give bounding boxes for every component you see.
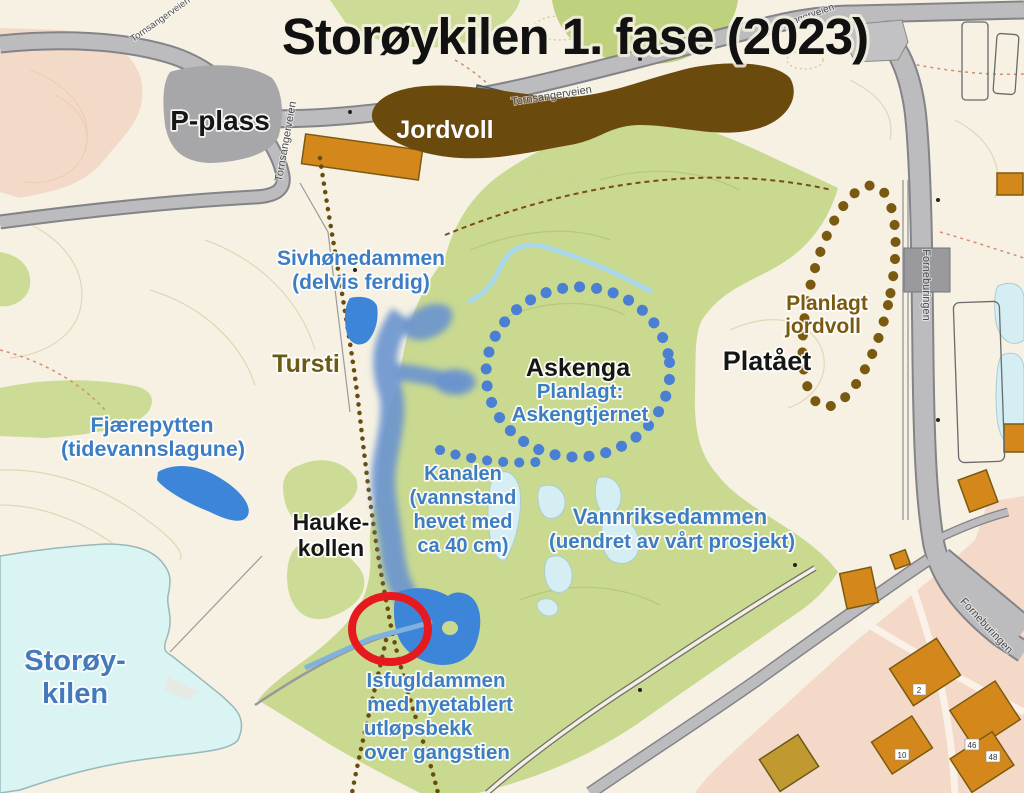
label-storoykilen-2: kilen [42, 678, 108, 710]
label-isfugldammen-2: med nyetablert [367, 693, 513, 716]
label-askengtjernet-2: Askengtjernet [512, 403, 649, 426]
label-p-plass: P-plass [170, 105, 270, 136]
label-isfugldammen-1: Isfugldammen [367, 669, 506, 692]
label-fjaerepytten-2: (tidevannslagune) [61, 437, 245, 461]
label-haukekollen-2: kollen [298, 535, 364, 561]
building-number: 2 [917, 686, 922, 695]
label-sivhonedammen-2: (delvis ferdig) [292, 271, 430, 294]
label-planlagt-jordvoll-1: Planlagt [786, 292, 868, 315]
map-title: Storøykilen 1. fase (2023) [282, 8, 868, 65]
road-top-east [855, 10, 1024, 14]
label-tursti: Tursti [272, 350, 340, 378]
building-number: 48 [989, 753, 998, 762]
label-kanalen-1: Kanalen [424, 463, 502, 485]
label-kanalen-3: hevet med [414, 511, 513, 533]
label-sivhonedammen-1: Sivhønedammen [277, 247, 445, 270]
building-number: 10 [898, 751, 907, 760]
label-jordvoll: Jordvoll [396, 116, 493, 144]
map-canvas: 2 10 46 48 Tornsangerveien Tornsangervei… [0, 0, 1024, 793]
building-number: 46 [968, 741, 977, 750]
label-kanalen-4: ca 40 cm) [417, 535, 508, 557]
map-screenshot: 2 10 46 48 Tornsangerveien Tornsangervei… [0, 0, 1024, 793]
label-planlagt-jordvoll-2: jordvoll [784, 315, 861, 338]
label-plataaet: Platået [723, 346, 812, 376]
label-isfugldammen-4: over gangstien [364, 741, 510, 764]
label-vannriksedammen-1: Vannriksedammen [573, 504, 767, 529]
label-isfugldammen-3: utløpsbekk [364, 717, 473, 740]
label-vannriksedammen-2: (uendret av vårt prosjekt) [549, 530, 795, 553]
isfugldammen-island [442, 621, 458, 635]
street-label-forneburingen: Forneburingen [920, 249, 932, 321]
label-storoykilen-1: Storøy- [24, 645, 126, 677]
label-askengtjernet-1: Planlagt: [537, 380, 624, 403]
label-haukekollen-1: Hauke- [293, 509, 370, 535]
label-askenga: Askenga [526, 354, 631, 382]
label-fjaerepytten-1: Fjærepytten [90, 413, 213, 437]
label-kanalen-2: (vannstand [410, 487, 517, 509]
